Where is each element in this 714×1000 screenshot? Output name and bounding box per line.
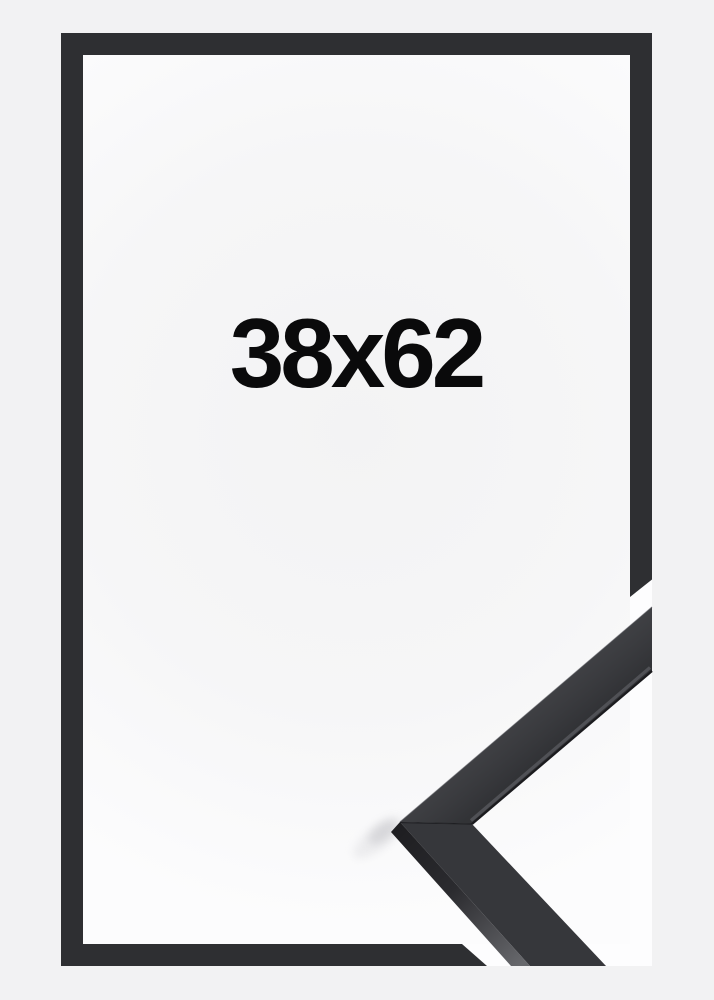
frame-product-image: 38x62 bbox=[0, 0, 714, 1000]
frame-inner-backing bbox=[83, 55, 630, 944]
frame-product-graphic: 38x62 bbox=[0, 0, 714, 1000]
size-label: 38x62 bbox=[230, 298, 483, 408]
